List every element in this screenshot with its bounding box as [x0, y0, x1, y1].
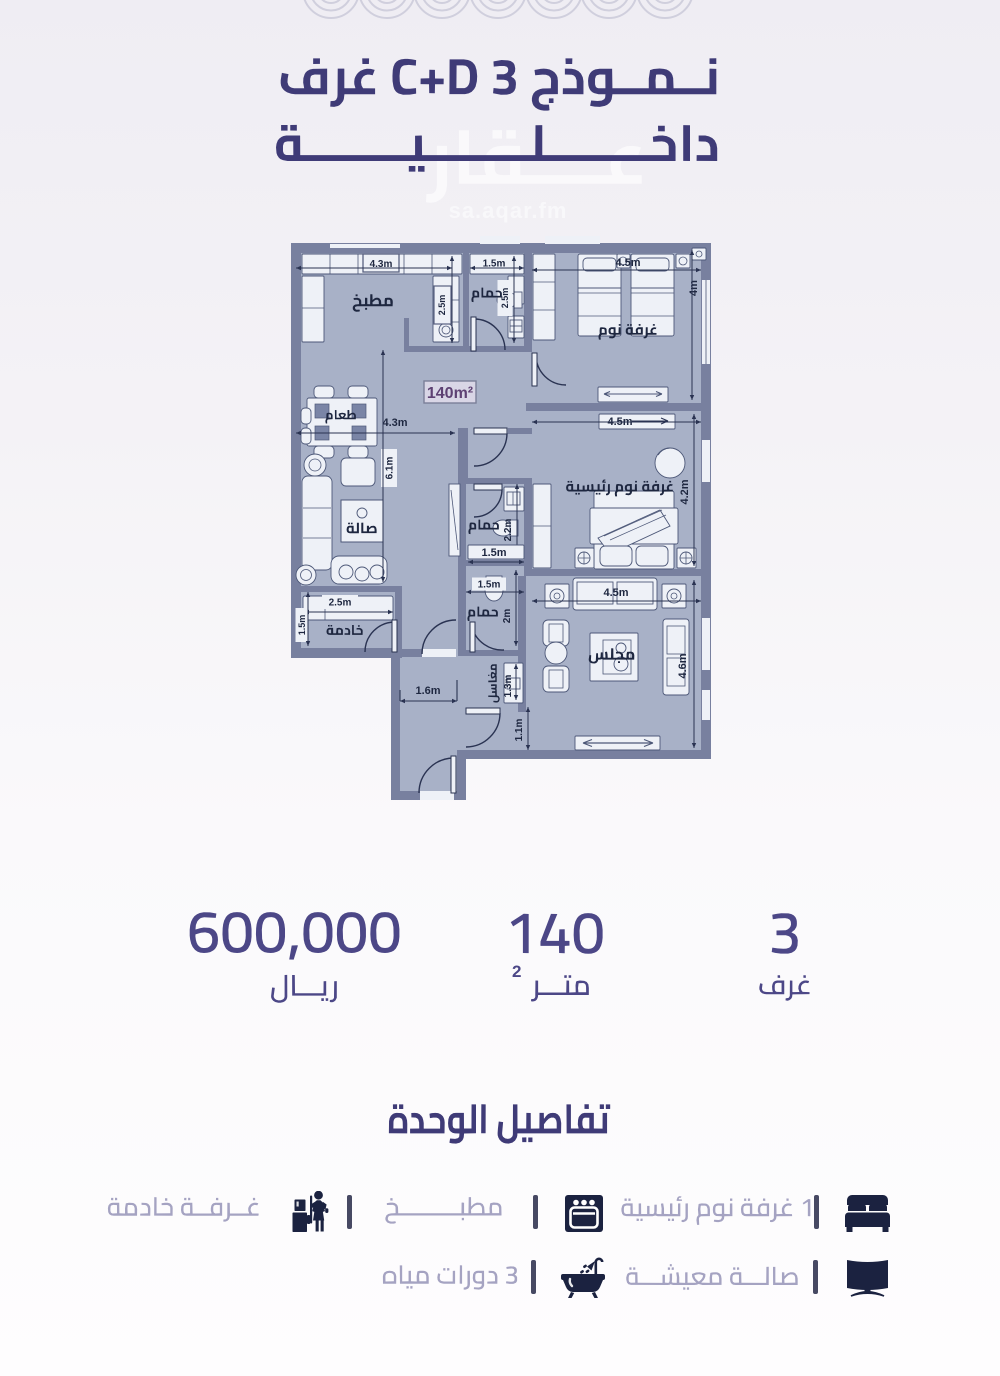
svg-text:1.5m: 1.5m — [297, 615, 307, 636]
svg-text:1.3m: 1.3m — [503, 674, 514, 697]
svg-text:140m²: 140m² — [427, 385, 473, 402]
svg-text:2.5m: 2.5m — [329, 598, 352, 609]
svg-text:1.1m: 1.1m — [514, 718, 525, 741]
svg-text:4.5m: 4.5m — [603, 587, 628, 599]
svg-text:2.2m: 2.2m — [503, 518, 514, 541]
svg-text:2.5m: 2.5m — [437, 295, 447, 316]
svg-text:4.2m: 4.2m — [679, 479, 691, 504]
svg-text:1.5m: 1.5m — [478, 580, 501, 591]
svg-text:1.6m: 1.6m — [415, 685, 440, 697]
svg-text:4.3m: 4.3m — [382, 417, 407, 429]
svg-text:1.5m: 1.5m — [481, 547, 506, 559]
svg-text:4m: 4m — [688, 280, 700, 296]
svg-text:2m: 2m — [502, 609, 513, 624]
svg-text:4.5m: 4.5m — [615, 257, 640, 269]
svg-text:2.5m: 2.5m — [500, 288, 510, 309]
svg-text:6.1m: 6.1m — [385, 456, 396, 479]
svg-text:4.6m: 4.6m — [677, 653, 689, 678]
